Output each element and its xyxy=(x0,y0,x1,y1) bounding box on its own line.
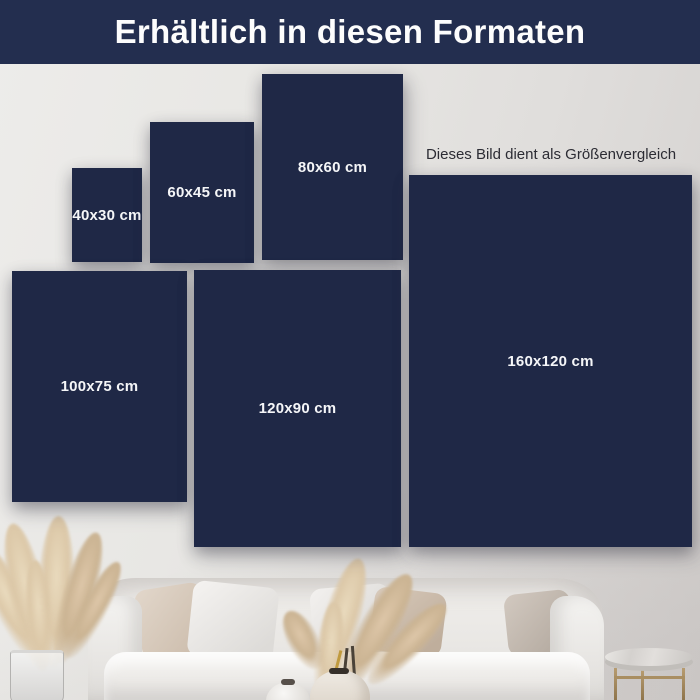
table-frame-bar xyxy=(614,676,685,679)
canvas-60x45: 60x45 cm xyxy=(150,122,254,263)
size-label-100x75: 100x75 cm xyxy=(61,378,139,395)
table-leg xyxy=(682,668,685,700)
canvas-40x30: 40x30 cm xyxy=(72,168,142,262)
size-label-40x30: 40x30 cm xyxy=(72,207,141,224)
size-label-80x60: 80x60 cm xyxy=(298,159,367,176)
canvas-100x75: 100x75 cm xyxy=(12,271,187,502)
marble-side-table xyxy=(605,648,693,666)
size-label-160x120: 160x120 cm xyxy=(507,353,593,370)
size-comparison-note: Dieses Bild dient als Größenvergleich xyxy=(405,146,697,163)
header-title: Erhältlich in diesen Formaten xyxy=(115,13,586,51)
header-banner: Erhältlich in diesen Formaten xyxy=(0,0,700,64)
canvas-160x120: 160x120 cm xyxy=(409,175,692,547)
canvas-80x60: 80x60 cm xyxy=(262,74,403,260)
canvas-120x90: 120x90 cm xyxy=(194,270,401,547)
glass-vase xyxy=(10,650,64,700)
size-comparison-graphic: Erhältlich in diesen Formaten Dieses Bil… xyxy=(0,0,700,700)
table-leg xyxy=(614,668,617,700)
size-label-60x45: 60x45 cm xyxy=(167,184,236,201)
table-leg xyxy=(641,670,644,700)
size-label-120x90: 120x90 cm xyxy=(259,400,337,417)
